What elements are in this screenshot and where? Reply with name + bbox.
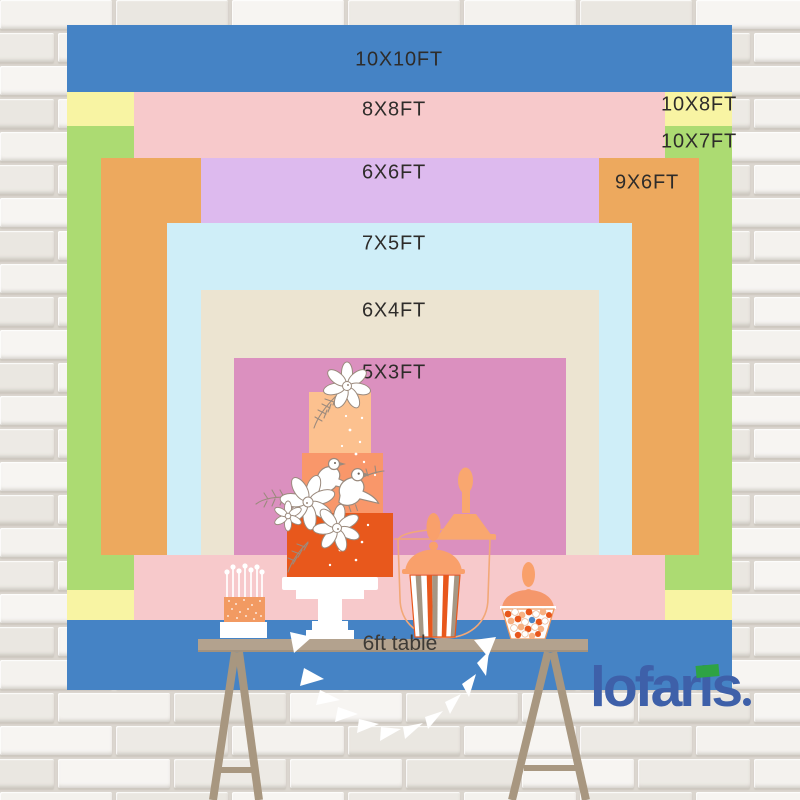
brick	[0, 495, 54, 524]
backdrop-size-chart: 10X10FT10X8FT10X7FT8X8FT9X6FT6X6FT7X5FT6…	[0, 0, 800, 800]
brick	[754, 99, 800, 128]
brick	[754, 231, 800, 260]
candle-cake	[220, 563, 267, 638]
candy-jar	[500, 562, 556, 639]
brick	[0, 99, 54, 128]
green-flag-icon	[696, 664, 720, 678]
size-label-10x8ft: 10X8FT	[661, 94, 737, 117]
trestle-legs	[213, 652, 586, 800]
brick	[0, 429, 54, 458]
brick	[754, 561, 800, 590]
size-label-8x8ft: 8X8FT	[362, 99, 426, 122]
brick	[0, 297, 54, 326]
decanter	[434, 468, 496, 540]
brick	[0, 792, 112, 800]
brand-logo-dot	[743, 698, 751, 706]
brick	[0, 561, 54, 590]
size-label-10x7ft: 10X7FT	[661, 131, 737, 154]
brick	[754, 363, 800, 392]
size-label-7x5ft: 7X5FT	[362, 233, 426, 256]
brick	[0, 363, 54, 392]
brick	[754, 627, 800, 656]
brand-logo: lofaris	[590, 659, 800, 729]
brick	[0, 33, 54, 62]
brick	[696, 792, 800, 800]
brick	[0, 165, 54, 194]
brick	[754, 165, 800, 194]
table-size-label: 6ft table	[363, 632, 438, 655]
brick	[638, 759, 750, 788]
brick	[754, 495, 800, 524]
brick	[0, 693, 54, 722]
brick	[0, 726, 112, 755]
size-label-9x6ft: 9X6FT	[615, 172, 679, 195]
brick	[0, 231, 54, 260]
brick	[0, 759, 54, 788]
brick	[0, 627, 54, 656]
brick	[754, 429, 800, 458]
cake-stand	[282, 577, 378, 639]
brick	[754, 759, 800, 788]
dessert-table-illustration: 6ft table	[140, 350, 620, 800]
size-label-6x4ft: 6X4FT	[362, 300, 426, 323]
brick	[754, 33, 800, 62]
size-label-6x6ft: 6X6FT	[362, 162, 426, 185]
brick	[696, 726, 800, 755]
brick	[754, 297, 800, 326]
size-label-10x10ft: 10X10FT	[355, 49, 443, 72]
